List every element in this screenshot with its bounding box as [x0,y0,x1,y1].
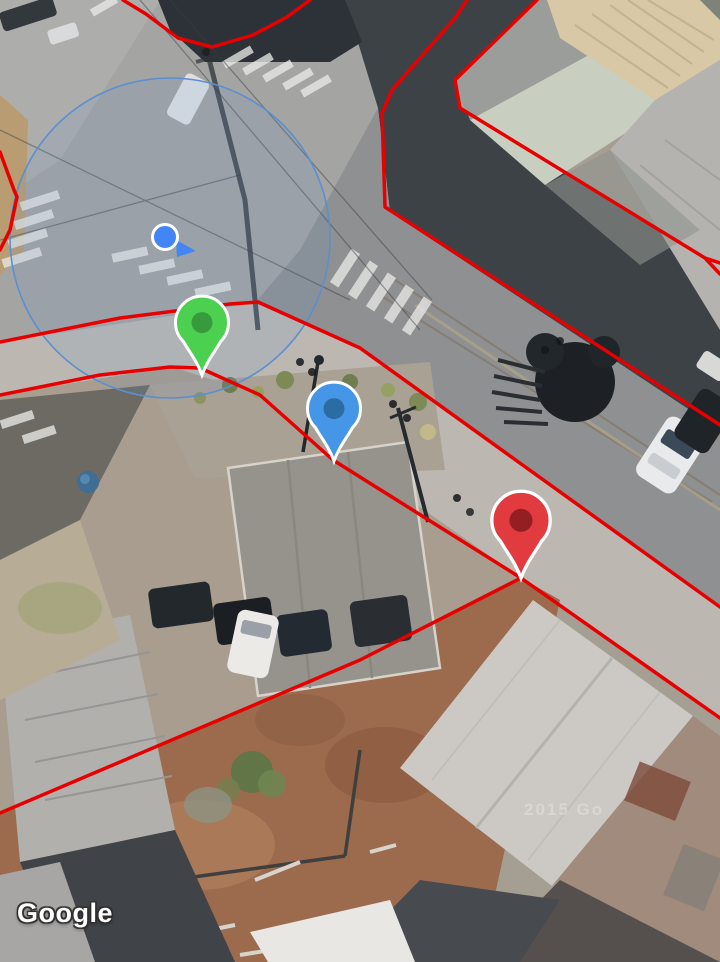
imagery-date-watermark: 2015 Go [524,800,604,820]
google-watermark: Google [17,898,113,929]
map-canvas[interactable]: 2015 Go Google [0,0,720,962]
